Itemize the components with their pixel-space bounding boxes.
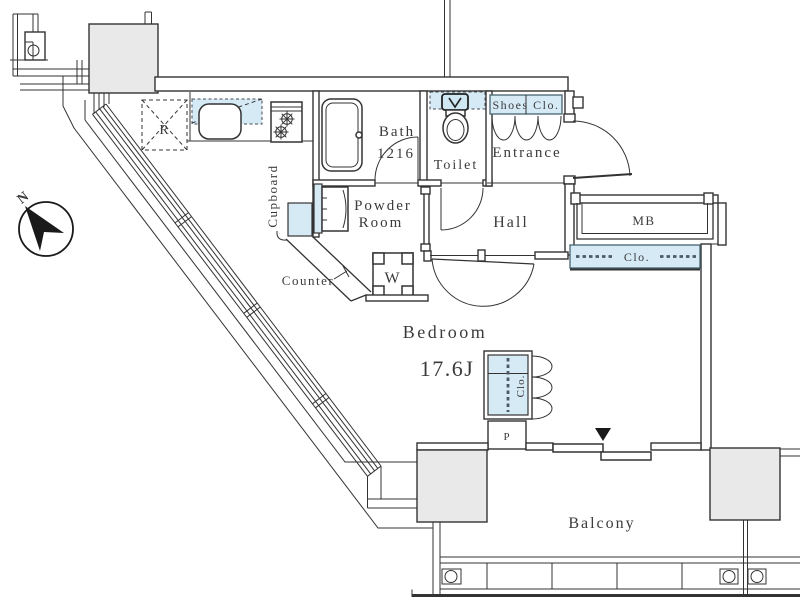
cupboard [288, 203, 312, 236]
bath-label: Bath [379, 124, 415, 140]
entrance-door-leaf [573, 174, 632, 178]
compass: N [15, 189, 73, 256]
north-label: N [15, 189, 32, 207]
pocket-door [421, 187, 430, 251]
hall-closet: Clo. [570, 245, 700, 270]
wall-stub [145, 12, 152, 24]
shoes-closet-doors [492, 116, 561, 140]
kitchen-sink [199, 104, 241, 139]
bathtub [322, 99, 362, 171]
floor-plan-drawing: R Cupboard Counter Bath [0, 0, 800, 613]
direction-triangle-icon [595, 428, 611, 441]
north-wall [155, 77, 568, 91]
bedroom-size-label: 17.6J [420, 356, 475, 381]
bedroom-label: Bedroom [403, 322, 488, 342]
counter-label: Counter [282, 273, 334, 288]
toilet-fixture [442, 94, 468, 143]
toilet-label: Toilet [434, 158, 478, 173]
hall-label: Hall [493, 214, 529, 231]
washer-label: W [384, 270, 401, 287]
refrigerator-label: R [159, 123, 170, 138]
eave-line-outer [63, 76, 433, 528]
entrance-door-arc [573, 121, 630, 176]
diagonal-window-wall [63, 76, 433, 528]
hall-closet-label: Clo. [624, 250, 650, 264]
meter-box: MB [571, 193, 718, 239]
gas-stove [271, 102, 302, 142]
hall-door-arc [441, 188, 483, 230]
powder-room-label-1: Powder [354, 198, 412, 214]
entrance-label: Entrance [492, 145, 561, 161]
bedroom-east-wall [701, 244, 711, 450]
cupboard-label: Cupboard [265, 164, 280, 227]
washer-nook-wall [366, 295, 428, 301]
bedroom-closet-label: Clo. [515, 375, 527, 398]
meter-box-label: MB [632, 213, 655, 228]
structural-column [89, 24, 158, 93]
floor-plan: R Cupboard Counter Bath [0, 0, 800, 613]
sliding-window [553, 444, 651, 460]
balcony-label: Balcony [568, 515, 635, 532]
bedroom-door-arc [432, 259, 534, 306]
balcony: Balcony [412, 448, 800, 597]
hall: Hall [441, 188, 529, 231]
counter-leader [334, 266, 349, 279]
burner-icon [274, 125, 289, 140]
bedroom: Bedroom 17.6J Clo. P [403, 250, 701, 460]
entrance: Shoes Clo. Entrance [487, 95, 632, 183]
bath-east-wall [420, 91, 427, 186]
counter-edge [286, 237, 371, 301]
pipe-space-label: P [503, 431, 510, 443]
structural-column [417, 450, 487, 522]
cupboard-leader [277, 231, 287, 240]
vanity [314, 184, 348, 233]
shoes-closet-label: Shoes Clo. [492, 98, 559, 112]
door-frame-nib [573, 97, 583, 108]
burner-icon [280, 112, 295, 127]
bedroom-closet: Clo. [484, 351, 552, 419]
closet-folding-doors [532, 356, 552, 419]
powder-room-label-2: Room [359, 215, 404, 231]
south-wall [417, 443, 488, 450]
corridor-divider [445, 0, 451, 77]
east-outer-wall-upper [718, 203, 726, 245]
washer-pan: W [373, 253, 413, 297]
eave-line [85, 100, 417, 462]
neighbor-structure [10, 14, 89, 90]
structure [89, 0, 726, 450]
toilet-room: Toilet [430, 91, 492, 186]
structural-column [710, 448, 780, 520]
bath-size-label: 1216 [377, 146, 415, 162]
pipe-space: P [488, 421, 526, 449]
